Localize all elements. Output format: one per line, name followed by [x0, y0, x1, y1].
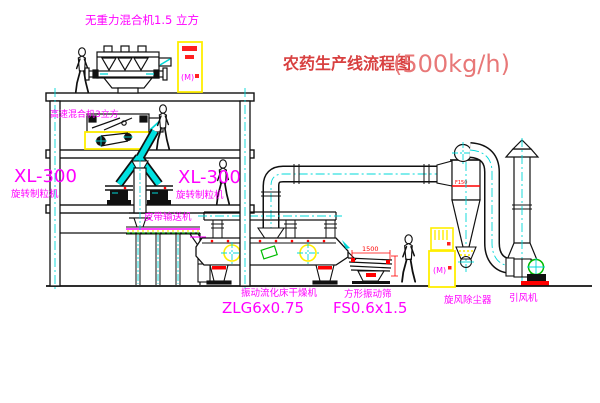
label-gravity-free-mixer: 无重力混合机1.5 立方 [85, 13, 199, 27]
sieve-clamp [351, 258, 355, 262]
dryer-body [196, 238, 348, 265]
conveyor-leg-centerlines [138, 235, 178, 284]
cabinet-right-mark: (M) [433, 266, 446, 275]
diagram-canvas: 1500 F150 [0, 0, 600, 403]
basement-pit [60, 233, 200, 285]
process-flow-diagram: 1500 F150 [0, 0, 600, 403]
control-cabinets-right: (M) [429, 228, 455, 287]
induced-draft-fan [506, 258, 549, 286]
label-granulator-right-name: 旋转制粒机 [176, 189, 224, 201]
exhaust-duct [258, 164, 450, 240]
person-near-sieve [402, 235, 415, 282]
label-dryer-name: 振动流化床干燥机 [241, 287, 318, 299]
label-dryer-model: ZLG6x0.75 [222, 299, 304, 317]
cabinet-top-mark: (M) [181, 73, 194, 82]
belt-conveyor [126, 227, 200, 285]
gravity-free-mixer [85, 46, 171, 93]
label-granulator-left-name: 旋转制粒机 [11, 188, 59, 200]
control-cabinet-top: (M) [178, 42, 202, 92]
dryer-feet [207, 265, 337, 284]
second-floor-slab [46, 150, 254, 158]
label-granulator-left-model: XL-300 [14, 166, 77, 187]
label-high-speed-mixer: 高速混合机3立方 [50, 108, 119, 120]
granulator-right [145, 186, 173, 205]
granulator-left [105, 186, 133, 205]
label-fan: 引风机 [509, 292, 538, 304]
roof-slab [46, 93, 254, 101]
sieve-clamp [386, 260, 390, 264]
label-granulator-right-model: XL-300 [178, 167, 241, 188]
diagram-title: 农药生产线流程图 (500kg/h) [282, 50, 510, 78]
sieve-dim-text: 1500 [362, 245, 379, 253]
vibrating-sieve: 1500 [342, 240, 398, 284]
label-belt-conveyor: 皮带输送机 [144, 211, 192, 223]
label-sieve-model: FS0.6x1.5 [333, 299, 407, 317]
title-text: 农药生产线流程图 [282, 54, 411, 73]
label-cyclone: 旋风除尘器 [444, 294, 492, 306]
title-capacity: (500kg/h) [393, 50, 510, 78]
